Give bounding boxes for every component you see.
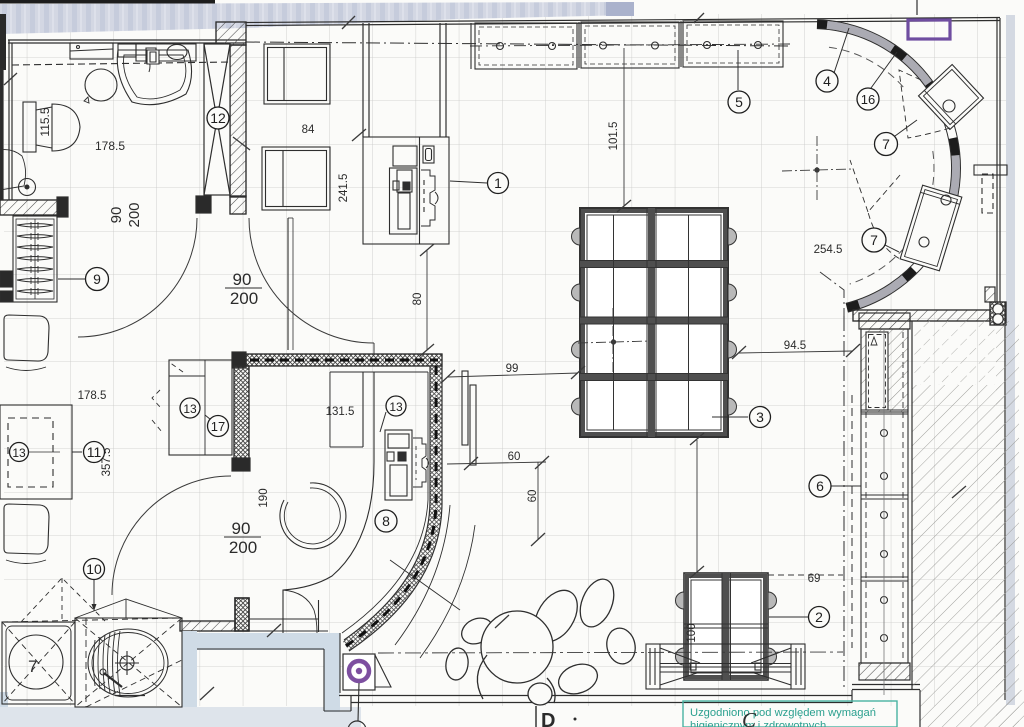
svg-text:4: 4 <box>823 73 831 89</box>
svg-text:178.5: 178.5 <box>78 390 107 402</box>
svg-text:200: 200 <box>230 289 258 308</box>
svg-text:13: 13 <box>12 446 26 460</box>
svg-text:80: 80 <box>412 293 424 306</box>
svg-text:241.5: 241.5 <box>338 174 350 203</box>
svg-text:99: 99 <box>506 363 519 375</box>
svg-text:3: 3 <box>756 409 764 425</box>
svg-text:190: 190 <box>258 488 270 507</box>
svg-text:178.5: 178.5 <box>95 139 125 153</box>
svg-text:84: 84 <box>302 124 315 136</box>
svg-text:7: 7 <box>882 136 890 152</box>
svg-text:7: 7 <box>28 657 37 676</box>
svg-text:D: D <box>541 710 555 727</box>
svg-text:5: 5 <box>735 94 743 110</box>
svg-text:6: 6 <box>816 478 824 494</box>
svg-text:11: 11 <box>87 444 102 460</box>
svg-text:60: 60 <box>508 451 521 463</box>
svg-text:1: 1 <box>494 175 502 191</box>
svg-text:9: 9 <box>93 271 101 287</box>
svg-text:100: 100 <box>686 623 698 642</box>
svg-text:13: 13 <box>389 400 403 414</box>
svg-text:16: 16 <box>861 92 875 107</box>
svg-text:94.5: 94.5 <box>784 340 806 352</box>
svg-text:115.5: 115.5 <box>38 107 52 136</box>
svg-text:90: 90 <box>232 519 251 538</box>
svg-text:higienicznym i zdrowotnych: higienicznym i zdrowotnych <box>690 720 826 727</box>
svg-text:Uzgodniono pod względem wymaga: Uzgodniono pod względem wymagań <box>690 707 876 719</box>
svg-text:C: C <box>742 708 757 727</box>
svg-text:8: 8 <box>382 513 390 529</box>
svg-text:200: 200 <box>126 202 143 227</box>
svg-text:200: 200 <box>229 538 257 557</box>
svg-text:90: 90 <box>108 207 125 224</box>
svg-text:2: 2 <box>815 609 823 625</box>
svg-text:10: 10 <box>86 561 102 577</box>
svg-text:90: 90 <box>233 270 252 289</box>
svg-text:60: 60 <box>527 490 539 503</box>
svg-text:254.5: 254.5 <box>814 244 843 256</box>
svg-text:69: 69 <box>808 573 821 585</box>
svg-text:13: 13 <box>183 402 197 416</box>
svg-text:7: 7 <box>870 232 878 248</box>
svg-text:101.5: 101.5 <box>608 122 620 151</box>
svg-text:17: 17 <box>211 419 225 434</box>
svg-text:131.5: 131.5 <box>326 406 355 418</box>
svg-text:12: 12 <box>210 110 226 126</box>
